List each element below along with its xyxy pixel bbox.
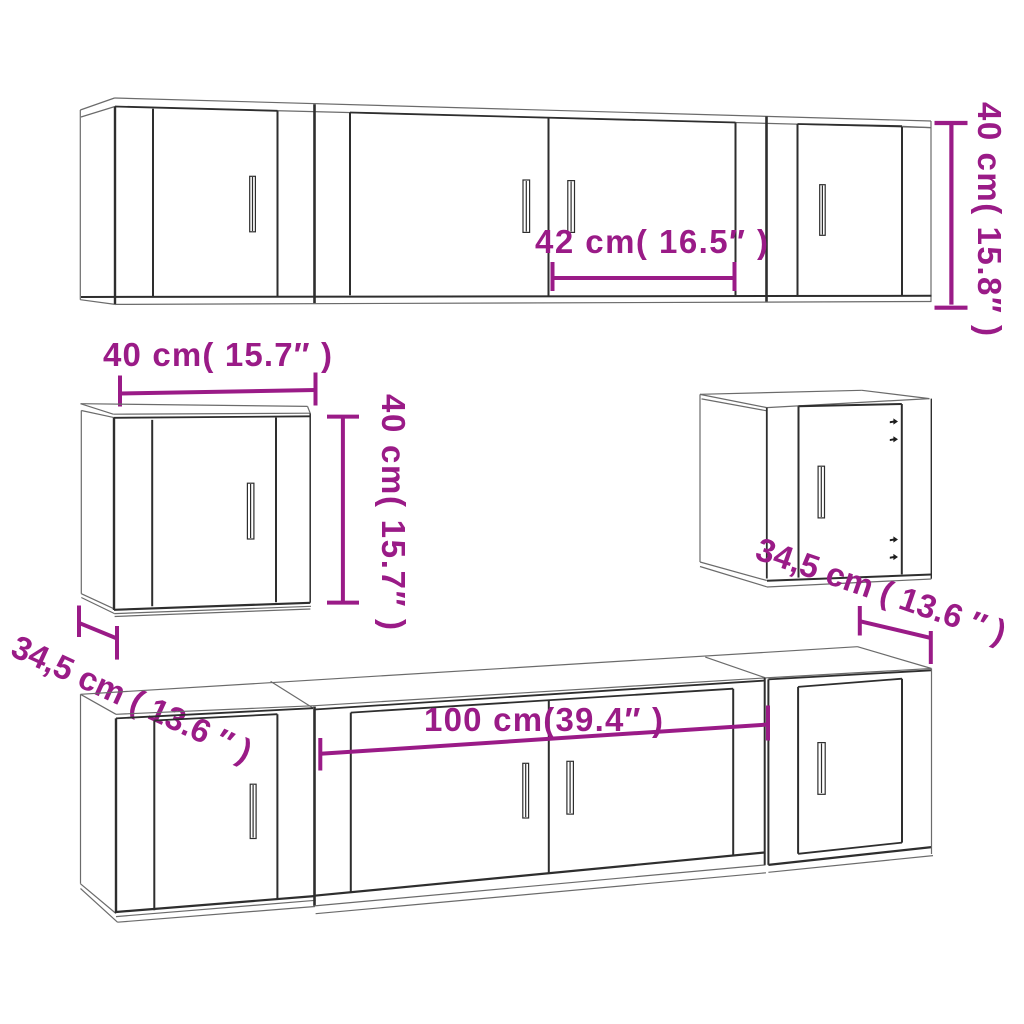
svg-text:40 cm( 15.7″ ): 40 cm( 15.7″ ) [375,394,412,630]
svg-text:42 cm( 16.5″ ): 42 cm( 16.5″ ) [535,223,768,260]
svg-text:40 cm( 15.8″ ): 40 cm( 15.8″ ) [971,102,1008,336]
svg-text:40 cm( 15.7″ ): 40 cm( 15.7″ ) [103,336,332,373]
